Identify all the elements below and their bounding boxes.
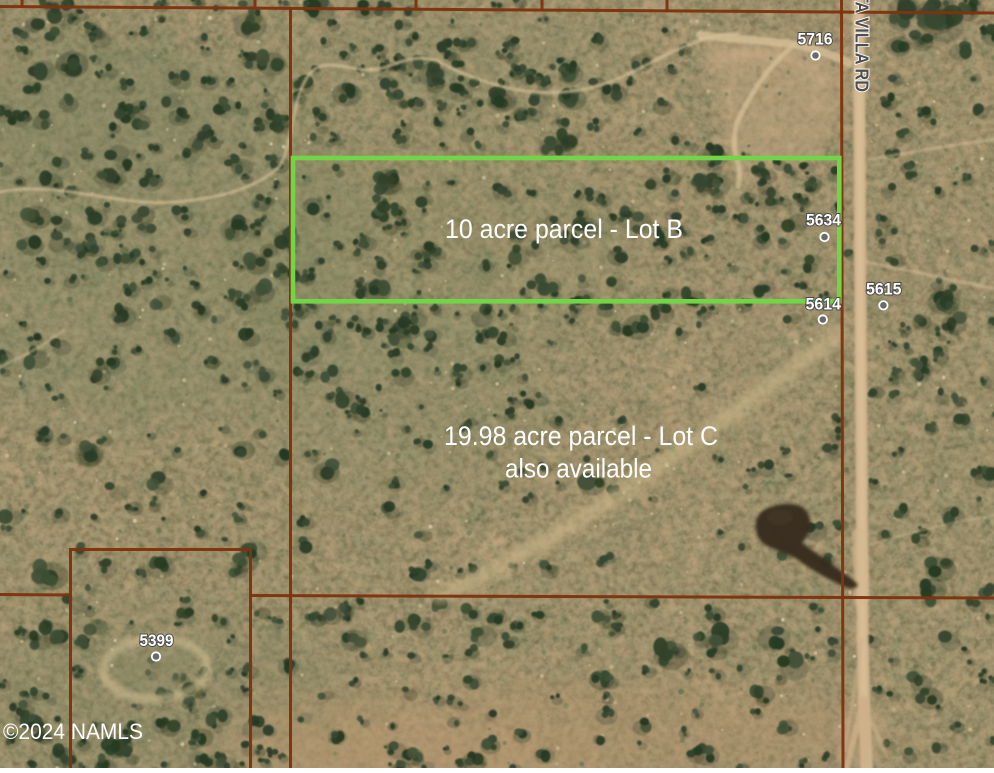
svg-text:19.98 acre parcel - Lot C: 19.98 acre parcel - Lot C bbox=[444, 421, 718, 451]
svg-text:10 acre parcel - Lot B: 10 acre parcel - Lot B bbox=[445, 214, 683, 244]
svg-text:5634: 5634 bbox=[806, 211, 842, 229]
svg-text:5716: 5716 bbox=[798, 31, 833, 49]
svg-text:5614: 5614 bbox=[806, 295, 842, 313]
svg-text:5399: 5399 bbox=[140, 632, 174, 650]
svg-text:5615: 5615 bbox=[866, 281, 902, 299]
svg-text:also available: also available bbox=[505, 454, 652, 484]
svg-text:STA VILLA RD: STA VILLA RD bbox=[852, 0, 873, 92]
svg-text:©2024 NAMLS: ©2024 NAMLS bbox=[3, 719, 143, 744]
